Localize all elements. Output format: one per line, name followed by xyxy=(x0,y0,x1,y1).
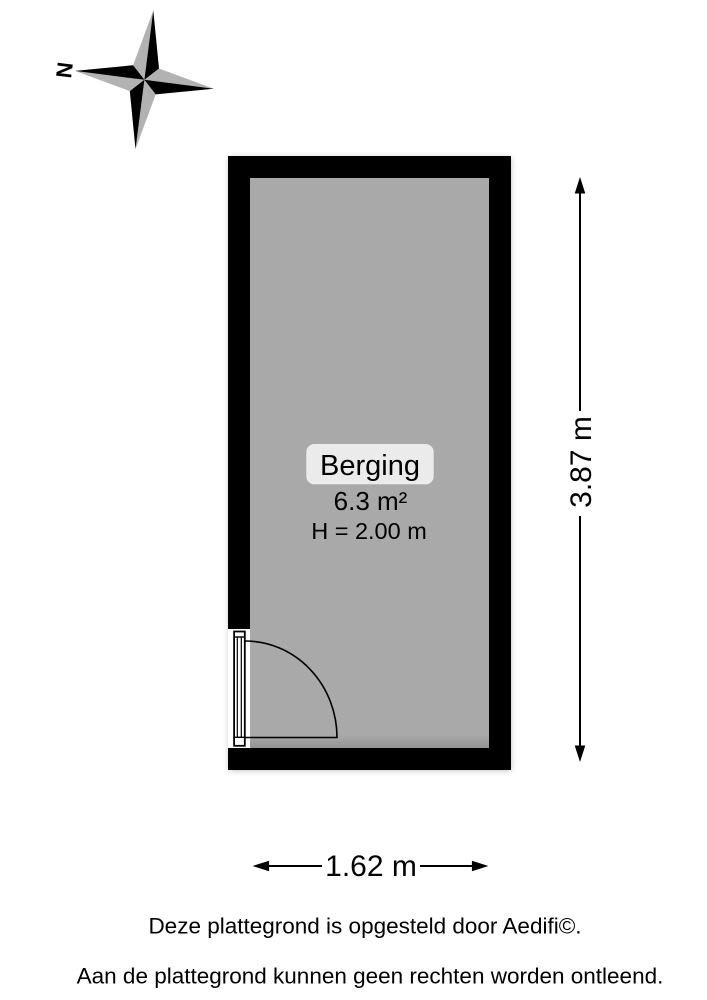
svg-text:6.3 m²: 6.3 m² xyxy=(334,486,408,516)
svg-text:Berging: Berging xyxy=(320,450,420,482)
svg-text:Aan de plattegrond kunnen geen: Aan de plattegrond kunnen geen rechten w… xyxy=(77,964,664,989)
svg-text:1.62 m: 1.62 m xyxy=(325,850,417,883)
svg-text:Deze plattegrond is opgesteld: Deze plattegrond is opgesteld door Aedif… xyxy=(148,914,581,939)
svg-text:H = 2.00 m: H = 2.00 m xyxy=(311,518,427,544)
svg-text:3.87 m: 3.87 m xyxy=(565,416,598,508)
svg-text:N: N xyxy=(51,61,78,80)
